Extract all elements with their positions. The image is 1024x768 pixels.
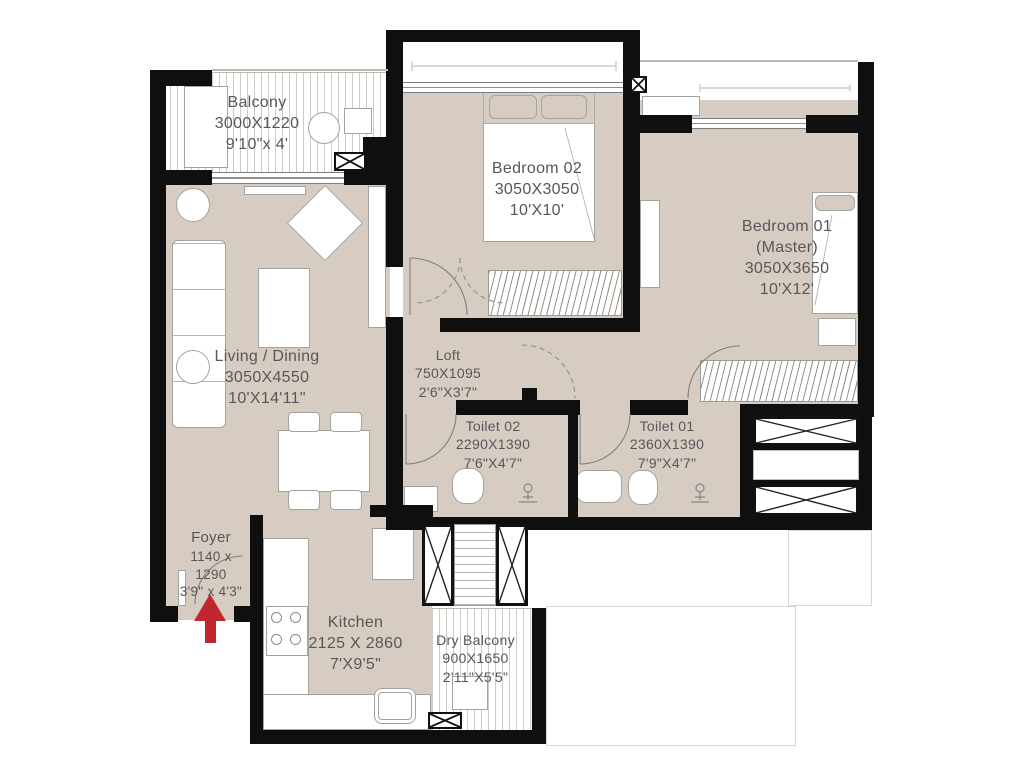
room-name: Dry Balcony	[408, 631, 543, 649]
cross-hatch-icon	[430, 714, 460, 727]
room-dim-ft: 10'X14'11"	[183, 388, 351, 409]
cross-hatch-icon	[499, 527, 525, 603]
room-dim-ft: 10'X12'	[708, 279, 866, 300]
duct-marker	[334, 152, 366, 171]
wall	[440, 318, 623, 332]
wardrobe-bedroom-02	[488, 270, 622, 316]
room-dim-mm: 2125 X 2860	[283, 633, 428, 654]
cross-hatch-icon	[756, 487, 856, 513]
dining-table	[278, 430, 370, 492]
pillow	[815, 195, 855, 211]
wc-toilet-01	[628, 470, 658, 505]
room-dim-mm: 3000X1220	[182, 113, 332, 134]
burner-icon	[271, 634, 282, 645]
dimension-line	[700, 84, 850, 92]
room-label-bedroom-02: Bedroom 02 3050X3050 10'X10'	[462, 158, 612, 221]
wall-shelf	[244, 186, 306, 195]
room-name: Loft	[393, 346, 503, 364]
room-dim-mm: 1140 x	[168, 548, 254, 566]
room-name: Toilet 01	[597, 417, 737, 435]
floor-plan: Balcony 3000X1220 9'10"x 4' Bedroom 02 3…	[0, 0, 1024, 768]
balcony-edge-line	[212, 69, 388, 71]
dining-chair	[330, 490, 362, 510]
duct-marker	[630, 76, 647, 93]
room-dim-mm: 900X1650	[408, 649, 543, 667]
room-subname: (Master)	[708, 237, 866, 258]
pillow	[541, 95, 587, 119]
coffee-table	[258, 268, 310, 348]
wall	[150, 70, 166, 622]
side-table	[176, 188, 210, 222]
kitchen-sink	[374, 688, 416, 724]
balcony-chair	[344, 108, 372, 134]
room-dim-ft: 9'10"x 4'	[182, 134, 332, 155]
room-dim-mm: 2290X1390	[423, 435, 563, 453]
room-dim-ft: 7'X9'5"	[283, 654, 428, 675]
room-dim-ft: 7'9"X4'7"	[597, 454, 737, 472]
dimension-line	[412, 61, 616, 71]
wall	[456, 400, 568, 415]
ledge-cross-box	[753, 484, 859, 516]
room-label-kitchen: Kitchen 2125 X 2860 7'X9'5"	[283, 612, 428, 675]
wall	[363, 137, 388, 172]
shaft-column	[422, 524, 454, 606]
room-label-balcony: Balcony 3000X1220 9'10"x 4'	[182, 92, 332, 155]
room-name: Toilet 02	[423, 417, 563, 435]
window-bedroom-02	[403, 82, 623, 93]
room-label-loft: Loft 750X1095 2'6"X3'7"	[393, 346, 503, 401]
dining-chair	[288, 490, 320, 510]
shaft-column	[496, 524, 528, 606]
wall	[386, 37, 403, 267]
room-dim-mm: 3050X3050	[462, 179, 612, 200]
room-dim-ft: 2'11"X5'5"	[408, 668, 543, 686]
room-dim-mm: 1290	[168, 566, 254, 584]
room-dim-mm: 2360X1390	[597, 435, 737, 453]
room-dim-ft: 7'6"X4'7"	[423, 454, 563, 472]
room-label-living-dining: Living / Dining 3050X4550 10'X14'11"	[183, 346, 351, 409]
wardrobe-bedroom-01	[700, 360, 858, 402]
room-label-foyer: Foyer 1140 x 1290 3'9" x 4'3"	[168, 528, 254, 601]
wc-toilet-02	[452, 468, 484, 504]
room-label-toilet-02: Toilet 02 2290X1390 7'6"X4'7"	[423, 417, 563, 472]
ledge-gap	[753, 450, 859, 480]
room-dim-mm: 750X1095	[393, 364, 503, 382]
bedside-table	[818, 318, 856, 346]
kitchen-platform	[372, 528, 414, 580]
window-living-balcony	[212, 172, 344, 184]
room-name: Kitchen	[283, 612, 428, 633]
ledge-cross-box	[753, 416, 859, 446]
room-dim-ft: 3'9" x 4'3"	[168, 583, 254, 601]
room-name: Bedroom 01	[708, 216, 866, 237]
dining-chair	[288, 412, 320, 432]
room-name: Living / Dining	[183, 346, 351, 367]
wall	[150, 170, 212, 185]
room-label-toilet-01: Toilet 01 2360X1390 7'9"X4'7"	[597, 417, 737, 472]
pillow	[489, 95, 537, 119]
room-dim-ft: 2'6"X3'7"	[393, 383, 503, 401]
room-name: Balcony	[182, 92, 332, 113]
dresser	[640, 200, 660, 288]
outdoor-terrace-outline	[546, 606, 796, 746]
room-dim-mm: 3050X3650	[708, 258, 866, 279]
window-bedroom-01	[692, 118, 806, 129]
tv-unit-master	[642, 96, 700, 116]
duct-shaft	[454, 524, 496, 606]
wall	[234, 606, 263, 622]
wall	[386, 30, 640, 42]
cross-hatch-icon	[336, 154, 364, 169]
room-dim-ft: 10'X10'	[462, 200, 612, 221]
room-label-bedroom-01: Bedroom 01 (Master) 3050X3650 10'X12'	[708, 216, 866, 300]
wall	[630, 400, 688, 415]
wall	[344, 170, 388, 185]
room-name: Foyer	[168, 528, 254, 548]
cross-hatch-icon	[425, 527, 451, 603]
outdoor-ledge-outline	[788, 530, 872, 606]
room-name: Bedroom 02	[462, 158, 612, 179]
wall	[150, 606, 178, 622]
dining-chair	[330, 412, 362, 432]
room-dim-mm: 3050X4550	[183, 367, 351, 388]
wall	[250, 730, 546, 744]
deck-edge-line	[640, 60, 858, 62]
wall	[568, 400, 578, 530]
burner-icon	[271, 612, 282, 623]
duct-marker	[428, 712, 462, 729]
entry-arrow-icon	[205, 620, 216, 643]
wall	[640, 115, 692, 133]
tv-unit-living	[368, 186, 386, 328]
cross-hatch-icon	[756, 419, 856, 443]
wall	[806, 115, 858, 133]
cross-hatch-icon	[632, 78, 645, 91]
washbasin-toilet-01	[576, 470, 622, 503]
room-label-dry-balcony: Dry Balcony 900X1650 2'11"X5'5"	[408, 631, 543, 686]
